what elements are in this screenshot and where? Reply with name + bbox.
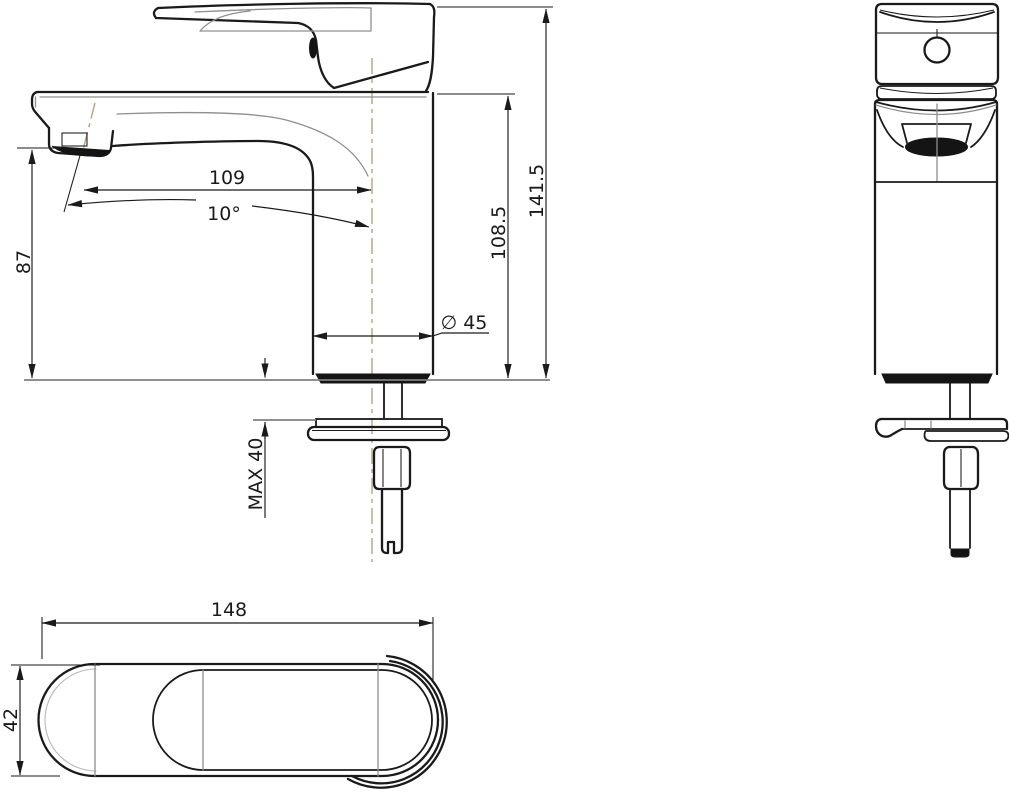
front-threaded-rod bbox=[950, 489, 970, 548]
handle-width-label: 42 bbox=[0, 708, 22, 732]
dim-spout-reach: 109 bbox=[84, 167, 371, 190]
ext-lines bbox=[42, 617, 433, 682]
plan-handle-top-face bbox=[153, 670, 432, 770]
front-washer-ticks bbox=[905, 421, 931, 428]
handle-underside bbox=[318, 57, 428, 88]
body-height-label: 108.5 bbox=[488, 206, 510, 260]
front-washer-left-hook bbox=[876, 419, 902, 437]
dim-spout-angle: 10° bbox=[68, 200, 369, 227]
front-base-gasket bbox=[882, 374, 992, 383]
aerator-outlet bbox=[62, 133, 87, 146]
front-handle-lens-upper bbox=[880, 10, 994, 17]
handle-joint-shadow bbox=[310, 38, 317, 58]
spout-angle-label: 10° bbox=[207, 203, 241, 225]
dim-spout-height: 87 bbox=[13, 148, 70, 378]
dim-body-diameter: ∅ 45 bbox=[313, 312, 489, 336]
spout-reach-label: 109 bbox=[209, 167, 245, 189]
dim-handle-width: 42 bbox=[0, 665, 100, 776]
handle-indicator-button bbox=[925, 38, 950, 63]
hex-nut-facets bbox=[383, 449, 401, 487]
plan-view: 148 42 bbox=[0, 599, 447, 788]
washer-top-plate bbox=[316, 419, 442, 427]
handle-back-edge bbox=[426, 4, 434, 91]
angle-arc-right bbox=[252, 206, 369, 227]
front-rod-end-cap bbox=[951, 549, 969, 557]
handle-length-label: 148 bbox=[211, 599, 247, 621]
spout-height-label: 87 bbox=[13, 250, 35, 274]
front-view bbox=[875, 4, 1009, 557]
total-height-label: 141.5 bbox=[526, 164, 548, 218]
handle-lever-outline bbox=[154, 3, 430, 57]
base-gasket bbox=[316, 374, 430, 383]
aerator-axis-extension bbox=[64, 152, 81, 212]
hex-nut bbox=[374, 447, 410, 489]
aerator-axis-centerline bbox=[83, 103, 95, 150]
max-deck-label: MAX 40 bbox=[245, 438, 267, 511]
front-supply-shank bbox=[950, 383, 970, 419]
front-collar bbox=[877, 86, 996, 99]
threaded-rod bbox=[382, 489, 402, 553]
front-shroud-left-curve bbox=[877, 110, 903, 147]
dim-max-deck-thickness: MAX 40 bbox=[245, 358, 316, 518]
body-diameter-label: ∅ 45 bbox=[441, 312, 488, 334]
washer-lower-plate bbox=[308, 427, 449, 440]
front-shroud-right-curve bbox=[971, 110, 995, 147]
front-collar-inner-arc bbox=[880, 88, 993, 94]
technical-drawing-page: 87 109 10° ∅ 45 108.5 141.5 bbox=[0, 0, 1009, 793]
angle-arc-left bbox=[68, 200, 196, 205]
lever-inner-top-line bbox=[195, 8, 371, 12]
supply-shank bbox=[384, 383, 402, 419]
plan-tangent-lines bbox=[95, 664, 378, 776]
side-view: 87 109 10° ∅ 45 108.5 141.5 bbox=[13, 3, 553, 562]
faucet-technical-drawing: 87 109 10° ∅ 45 108.5 141.5 bbox=[0, 0, 1009, 793]
front-washer-lower-plate bbox=[925, 431, 1009, 441]
front-washer-top-plate bbox=[881, 419, 1007, 429]
dim-body-height: 108.5 bbox=[437, 94, 515, 378]
